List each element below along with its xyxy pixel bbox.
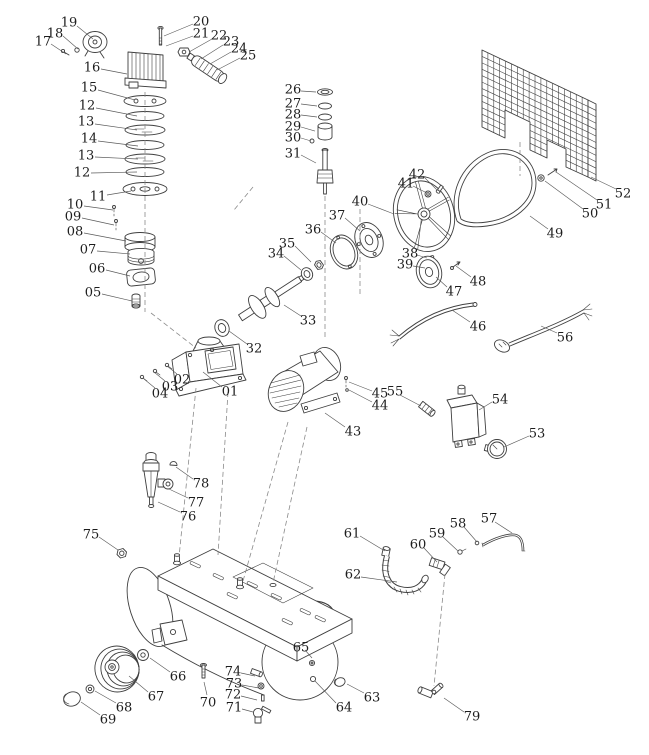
leader-line (81, 702, 100, 715)
leader-line (229, 331, 247, 344)
part-label-12: 12 (79, 99, 96, 114)
assembly-axis-line (434, 574, 445, 686)
leader-line (504, 436, 529, 447)
part-label-74: 74 (225, 665, 242, 680)
drain-seal (262, 695, 265, 701)
outlet-fitting (178, 48, 190, 56)
part-label-58: 58 (450, 517, 467, 532)
exploded-parts-diagram: 1718192021222324251615121314131211100908… (0, 0, 649, 755)
motor-wire (390, 303, 477, 347)
outlet-nipple (419, 401, 437, 417)
leader-line (591, 177, 616, 189)
part-label-40: 40 (352, 195, 369, 210)
part-label-51: 51 (596, 198, 613, 213)
part-label-39: 39 (397, 258, 414, 273)
part-label-13: 13 (78, 149, 95, 164)
rubber-foot (334, 676, 347, 687)
belt-guard-grille (482, 50, 596, 181)
part-label-43: 43 (345, 425, 362, 440)
assembly-axis-line (179, 388, 196, 557)
part-label-35: 35 (279, 237, 296, 252)
leader-line (82, 218, 114, 225)
part-label-66: 66 (170, 670, 187, 685)
part-label-07: 07 (80, 243, 97, 258)
part-label-02: 02 (174, 373, 191, 388)
assembly-axis-line (218, 392, 228, 555)
part-label-54: 54 (492, 393, 509, 408)
leader-line (284, 305, 301, 316)
part-label-64: 64 (336, 701, 353, 716)
outlet-pipe (482, 535, 525, 551)
grille-washer (538, 175, 544, 181)
leader-line (301, 104, 317, 106)
leader-line (325, 413, 345, 427)
muffler (185, 51, 228, 85)
part-label-53: 53 (529, 427, 546, 442)
assembly-axis-line (273, 427, 307, 583)
part-label-36: 36 (305, 223, 322, 238)
leader-line (241, 696, 257, 700)
part-label-62: 62 (345, 568, 362, 583)
leader-line (217, 58, 240, 70)
leader-line (150, 658, 170, 672)
cylinder-head (125, 52, 166, 88)
base-gasket (126, 268, 156, 287)
hose-end-cap (382, 546, 391, 557)
leader-line (345, 218, 360, 231)
part-label-57: 57 (481, 512, 498, 527)
flywheel-washer (425, 191, 431, 197)
leader-line (301, 127, 315, 131)
leader-line (545, 181, 583, 209)
head-bolt (158, 26, 163, 45)
motor-bolts (345, 377, 349, 392)
leader-line (444, 698, 464, 712)
leader-line (158, 502, 180, 512)
bearing-cover (350, 218, 389, 261)
leader-line (295, 246, 311, 262)
hub-cap (62, 690, 83, 709)
leader-line (164, 24, 193, 36)
part-label-16: 16 (84, 61, 101, 76)
part-label-67: 67 (148, 690, 165, 705)
wheel-washer (138, 650, 149, 661)
power-cord (492, 304, 592, 355)
leader-line (301, 91, 316, 92)
assembly-axis-line (243, 422, 288, 581)
part-label-48: 48 (470, 275, 487, 290)
part-label-25: 25 (240, 49, 257, 64)
pulley-screw (451, 262, 461, 270)
part-label-52: 52 (615, 187, 632, 202)
leader-line (99, 537, 118, 550)
part-label-37: 37 (329, 209, 346, 224)
regulator-cap (170, 462, 177, 466)
part-label-59: 59 (429, 527, 446, 542)
part-label-42: 42 (409, 168, 426, 183)
part-label-56: 56 (557, 331, 574, 346)
axle-bolt (201, 664, 207, 679)
leader-line (96, 108, 137, 116)
leader-line (301, 138, 311, 141)
tank-check-valve-fitting (417, 682, 444, 697)
leader-line (63, 36, 78, 49)
leader-line (242, 709, 253, 712)
motor (262, 343, 345, 417)
drain-cock (253, 706, 270, 723)
leader-line (347, 684, 364, 693)
part-label-55: 55 (387, 385, 404, 400)
mount-nut (117, 549, 127, 559)
diagram-canvas: 1718192021222324251615121314131211100908… (0, 0, 649, 755)
leader-line (102, 294, 132, 301)
part-label-11: 11 (90, 190, 107, 205)
leader-line (51, 44, 66, 54)
leader-line (210, 52, 231, 64)
filter-screw (61, 48, 79, 55)
leader-line (284, 256, 301, 270)
leader-line (201, 45, 223, 59)
part-label-69: 69 (100, 713, 117, 728)
vibration-mount-bolt (236, 578, 243, 589)
part-label-68: 68 (116, 701, 133, 716)
part-label-06: 06 (89, 262, 106, 277)
part-label-09: 09 (65, 210, 82, 225)
part-label-31: 31 (285, 147, 302, 162)
part-label-08: 08 (67, 225, 84, 240)
part-label-47: 47 (446, 285, 463, 300)
part-label-01: 01 (222, 385, 239, 400)
leader-line (495, 522, 512, 533)
leader-line (349, 390, 372, 402)
leader-line (349, 382, 372, 391)
part-label-12: 12 (74, 166, 91, 181)
check-valve-stack (310, 89, 333, 194)
leader-line (368, 204, 394, 214)
leader-line (204, 682, 207, 695)
part-label-21: 21 (193, 27, 210, 42)
part-label-26: 26 (285, 83, 302, 98)
small-washer (86, 685, 94, 693)
leader-line (530, 216, 548, 229)
v-belt (454, 149, 536, 226)
pressure-switch (447, 385, 486, 447)
part-label-71: 71 (226, 701, 243, 716)
wheel (90, 641, 144, 697)
air-filter (83, 32, 107, 59)
part-label-30: 30 (285, 131, 302, 146)
part-label-75: 75 (83, 528, 100, 543)
elbow-fitting (429, 558, 450, 576)
leader-line (98, 90, 135, 100)
assembly-axis-line (151, 313, 196, 348)
part-label-14: 14 (81, 132, 98, 147)
part-label-19: 19 (61, 16, 78, 31)
drain-fitting (251, 669, 264, 678)
leader-line (84, 206, 113, 210)
regulator (143, 453, 173, 508)
oil-plug (132, 294, 140, 308)
part-label-77: 77 (188, 496, 205, 511)
pressure-gauge (484, 440, 506, 459)
leader-line (301, 115, 317, 117)
leader-line (301, 155, 316, 163)
head-screws (113, 206, 118, 231)
tank-plug (310, 676, 315, 681)
mounting-platform (158, 549, 352, 661)
leader-line (452, 310, 470, 322)
part-label-76: 76 (180, 510, 197, 525)
part-label-46: 46 (470, 320, 487, 335)
part-label-60: 60 (410, 538, 427, 553)
leader-line (97, 251, 130, 254)
part-label-61: 61 (344, 527, 361, 542)
leader-line (321, 232, 336, 243)
part-label-78: 78 (193, 477, 210, 492)
part-label-65: 65 (293, 641, 310, 656)
leader-line (166, 36, 193, 46)
compression-sleeve (458, 549, 466, 554)
leader-line (361, 577, 397, 582)
leader-line (101, 69, 127, 74)
part-label-70: 70 (200, 696, 217, 711)
leader-line (176, 467, 193, 479)
oil-seal (213, 318, 232, 339)
part-label-79: 79 (464, 710, 481, 725)
leader-line (95, 691, 116, 703)
part-label-05: 05 (85, 286, 102, 301)
part-label-49: 49 (547, 227, 564, 242)
assembly-axis-line (234, 187, 253, 210)
grille-screw (548, 169, 557, 175)
part-label-32: 32 (246, 342, 263, 357)
part-label-33: 33 (300, 314, 317, 329)
leader-line (84, 233, 126, 241)
piston (128, 248, 154, 265)
braided-hose (382, 556, 430, 595)
part-label-63: 63 (364, 691, 381, 706)
part-label-13: 13 (78, 115, 95, 130)
shaft-nut (313, 259, 324, 271)
leader-line (360, 536, 385, 551)
part-label-15: 15 (81, 81, 98, 96)
